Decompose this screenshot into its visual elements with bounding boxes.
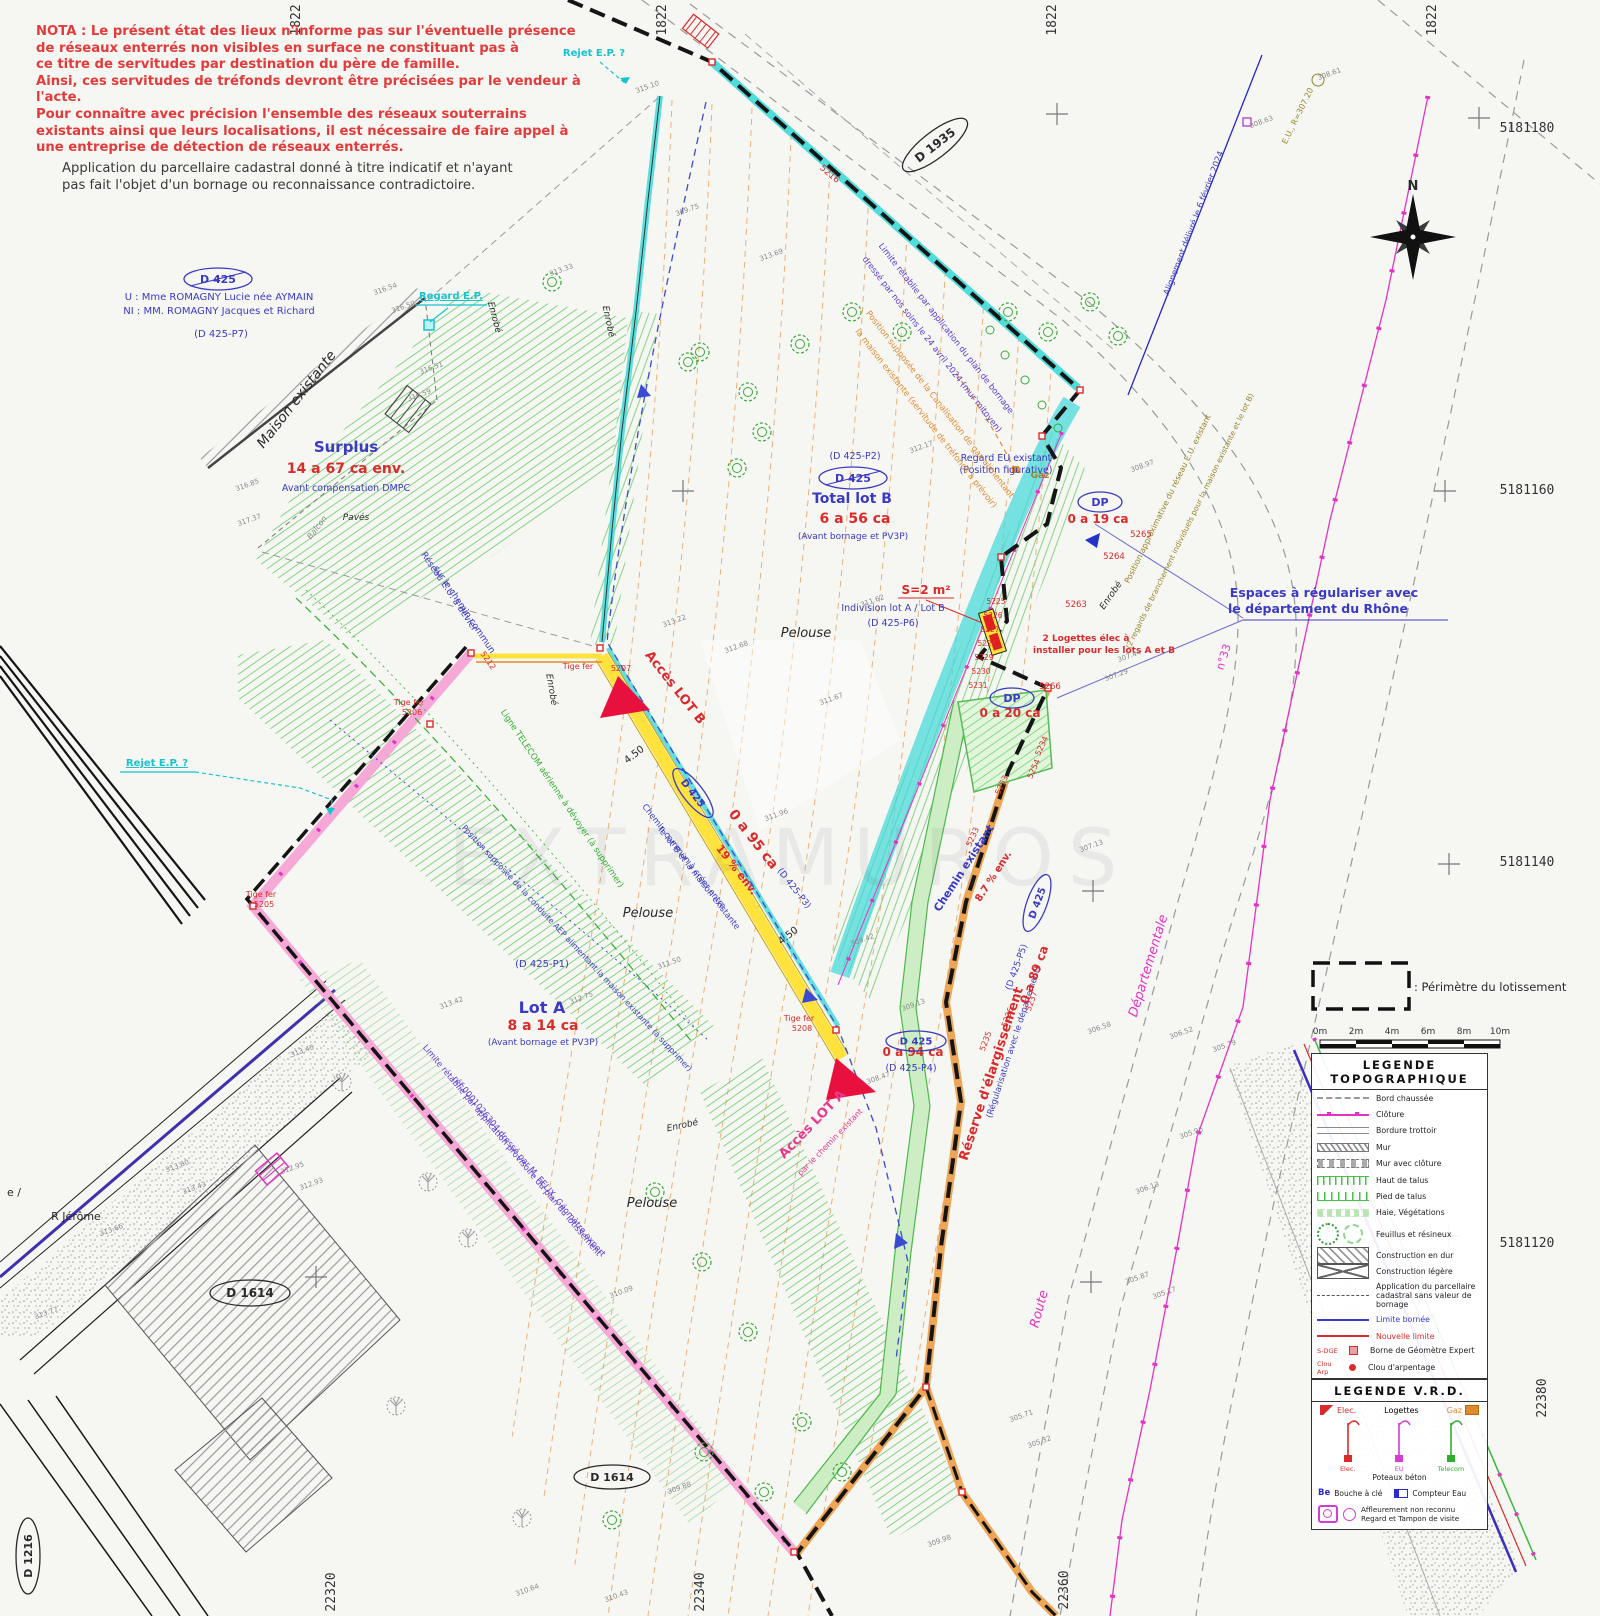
map-label-84: 5212: [479, 650, 498, 672]
svg-text:D 425: D 425: [200, 273, 236, 286]
pole-elec-icon: Elec.: [1335, 1415, 1361, 1473]
map-label-3: Maison existante: [254, 348, 340, 452]
elevation-label-25: 305.79: [1211, 1038, 1237, 1054]
construction-legere-symbol: [1317, 1266, 1369, 1278]
mur-symbol: [1317, 1141, 1369, 1153]
regard-sortie-symbol: [682, 14, 718, 48]
map-label-93: 5229: [974, 653, 993, 662]
nota-line: une entreprise de détection de réseaux e…: [36, 140, 596, 157]
construction-dur-symbol: [1317, 1250, 1369, 1262]
map-label-1: Regard E.P.: [419, 291, 483, 302]
elevation-label-26: 305.96: [1178, 1125, 1204, 1141]
scalebar-label: 8m: [1457, 1027, 1472, 1037]
compteur-eau-icon: [1394, 1489, 1408, 1498]
grid-x-label-top: 1822: [655, 4, 670, 35]
pole-telecom-icon: Telecom: [1438, 1415, 1465, 1473]
map-label-23: 2 Logettes élec à: [1043, 633, 1130, 644]
vrd-row-regard: Affleurement non reconnuRegard et Tampon…: [1312, 1501, 1487, 1529]
elevation-label-8: 316.85: [234, 477, 260, 493]
map-label-2: Rejet E.P. ?: [126, 758, 188, 769]
map-label-26: le département du Rhône: [1228, 601, 1408, 616]
elevation-label-0: 315.10: [634, 79, 660, 95]
elevation-label-3: 313.33: [548, 262, 574, 278]
scalebar-label: 4m: [1385, 1027, 1400, 1037]
map-label-27: Alignement délivré le 6 février 2024: [1161, 149, 1226, 296]
elevation-label-27: 305.87: [1124, 1270, 1150, 1286]
map-label-67: E.U., R=307.20: [1280, 86, 1315, 145]
legend-item-nouvelle: Nouvelle limite: [1312, 1328, 1487, 1344]
scalebar-label: 6m: [1421, 1027, 1436, 1037]
parcel-ellipse-0: D 425: [184, 268, 252, 290]
svg-text:D 425: D 425: [900, 1037, 933, 1048]
grid-y-label: 5181120: [1500, 1236, 1555, 1251]
elevation-label-43: 310.64: [514, 1582, 540, 1598]
cadastral-plan-page: EXTRAMUROS 51811805181160518114051811202…: [0, 0, 1600, 1616]
parcel-ellipse-9: D 1614: [574, 1465, 650, 1489]
grid-cross: [1046, 103, 1068, 125]
map-label-95: 5231: [968, 681, 987, 690]
bord-chaussee-symbol: [1317, 1092, 1369, 1104]
map-label-76: 5207: [611, 664, 631, 673]
grid-x-label: 22320: [324, 1572, 339, 1611]
legend-item-haut: Haut de talus: [1312, 1172, 1487, 1188]
map-label-11: (D 425-P7): [194, 329, 248, 340]
road-heavy-left: [0, 646, 205, 924]
nota-block: NOTA : Le présent état des lieux n'infor…: [36, 24, 596, 157]
elevation-label-1: 309.75: [674, 202, 700, 218]
haut-talus-symbol: [1317, 1174, 1369, 1186]
map-label-68: Gaz: [1031, 471, 1050, 481]
elevation-label-18: 308.61: [1316, 66, 1342, 82]
map-label-90: 5226: [983, 611, 1002, 620]
map-label-13: Total lot B: [812, 491, 892, 507]
map-label-54: Réserve d'élargissement: [957, 985, 1027, 1162]
scalebar-label: 0m: [1313, 1027, 1328, 1037]
legend-item-clou: Clou ArpClou d'arpentage: [1312, 1358, 1487, 1378]
map-label-24: installer pour les lots A et B: [1033, 646, 1175, 656]
nota-line: Ainsi, ces servitudes de tréfonds devron…: [36, 74, 596, 107]
elevation-label-23: 306.52: [1168, 1025, 1194, 1041]
elevation-label-35: 311.50: [656, 955, 682, 971]
map-label-8: Pavés: [343, 512, 370, 523]
map-label-94: 5230: [971, 667, 990, 676]
elevation-label-20: 307.29: [1103, 667, 1129, 683]
elevation-label-4: 316.54: [372, 281, 398, 297]
legend-item-dur: Construction en dur: [1312, 1247, 1487, 1263]
grid-y-label: 5181180: [1500, 121, 1555, 136]
grid-x-label-top: 1822: [1425, 4, 1440, 35]
map-label-45: Enrobé: [543, 673, 559, 707]
map-label-38: 4.50: [622, 744, 646, 766]
vrd-row-bouche: Be Bouche à clé Compteur Eau: [1312, 1485, 1487, 1501]
elevation-label-24: 306.13: [1134, 1180, 1160, 1196]
scale-bar: [1320, 1040, 1500, 1048]
grid-x-label-top: 1822: [1045, 4, 1060, 35]
legend-topo-title: LEGENDE TOPOGRAPHIQUE: [1312, 1054, 1487, 1090]
nouvelle-limite-symbol: [1317, 1330, 1369, 1342]
map-label-9: U : Mme ROMAGNY Lucie née AYMAIN: [125, 291, 314, 303]
map-label-87: 5263: [1065, 600, 1087, 610]
map-label-105: N: [1408, 179, 1419, 194]
map-label-51: (Avant bornage et PV3P): [488, 1038, 598, 1048]
map-label-29: dressé par nos soins le 24 avril 2024 (m…: [860, 254, 1004, 434]
map-label-10: NI : MM. ROMAGNY Jacques et Richard: [123, 306, 314, 317]
map-label-12: (D 425-P2): [829, 451, 880, 462]
map-label-79: Tige fer: [245, 890, 277, 899]
acces-lot-b-arrow: [600, 676, 650, 718]
legend-item-arbres: Feuillus et résineux: [1312, 1221, 1487, 1247]
scalebar-label: 2m: [1349, 1027, 1364, 1037]
map-label-89: 5225: [986, 597, 1005, 606]
poteaux-beton-caption: Poteaux béton: [1312, 1473, 1487, 1485]
map-label-92: 5228: [977, 639, 996, 648]
nota-line: Pour connaître avec précision l'ensemble…: [36, 107, 596, 124]
limite-bornee-symbol: [1317, 1314, 1369, 1326]
map-label-103: R Jérôme: [51, 1210, 101, 1223]
map-label-61: par le chemin existant: [796, 1107, 865, 1178]
map-label-75: Tige fer: [562, 662, 594, 671]
nota-line: de réseaux enterrés non visibles en surf…: [36, 41, 596, 58]
legend-item-pied: Pied de talus: [1312, 1188, 1487, 1204]
map-label-18: S=2 m²: [902, 583, 951, 597]
parcel-ellipse-1: D 425: [819, 467, 887, 489]
elevation-label-30: 308.47: [865, 1070, 891, 1086]
elevation-label-33: 313.42: [438, 995, 464, 1011]
feuillus-icon: [1317, 1223, 1369, 1245]
borne-icon: [1349, 1346, 1358, 1355]
map-label-59: (D 425-P4): [885, 1063, 936, 1074]
application-line: Application du parcellaire cadastral don…: [62, 160, 582, 177]
vrd-row-logettes: Elec. Logettes Gaz: [1312, 1402, 1487, 1415]
map-label-64: n°33: [1214, 642, 1234, 671]
map-label-104: e /: [7, 1186, 21, 1199]
svg-text:D 425: D 425: [835, 472, 871, 485]
elevation-label-38: 312.93: [298, 1176, 324, 1192]
map-label-91: 5227: [980, 625, 999, 634]
map-label-49: Lot A: [519, 998, 566, 1017]
map-label-19: Indivision lot A / Lot B: [841, 603, 944, 614]
legend-vrd-title: LEGENDE V.R.D.: [1312, 1380, 1487, 1402]
elevation-label-28: 305.17: [1151, 1285, 1177, 1301]
tampon-icon: [1343, 1508, 1356, 1521]
elec-flag-icon: [1320, 1405, 1334, 1415]
mur-cloture-symbol: [1317, 1158, 1369, 1170]
map-label-41: Pelouse: [623, 906, 673, 921]
elevation-label-47: 305.32: [1026, 1434, 1052, 1450]
legend-topographique: LEGENDE TOPOGRAPHIQUE Bord chaussée Clôt…: [1311, 1053, 1488, 1379]
elevation-label-46: 305.71: [1008, 1408, 1034, 1424]
grid-x-label: 22380: [1535, 1378, 1550, 1417]
map-label-62: Départementale: [1126, 913, 1171, 1019]
legend-item-parcellaire: Application du parcellaire cadastral san…: [1312, 1280, 1487, 1311]
nota-line: NOTA : Le présent état des lieux n'infor…: [36, 24, 596, 41]
elevation-label-44: 310.43: [603, 1588, 629, 1604]
legend-column: LEGENDE TOPOGRAPHIQUE Bord chaussée Clôt…: [1311, 1053, 1488, 1530]
parcellaire-symbol: [1317, 1290, 1369, 1302]
svg-text:D 1935: D 1935: [912, 125, 958, 165]
map-label-88: 5266: [1039, 682, 1061, 692]
map-label-30: Position supposée de la Canalisation de …: [863, 308, 1017, 501]
grid-x-label: 22360: [1057, 1570, 1072, 1609]
svg-text:DP: DP: [1003, 692, 1020, 705]
grid-y-label: 5181160: [1500, 483, 1555, 498]
elevation-label-10: 313.22: [661, 613, 687, 629]
scalebar-label: 10m: [1490, 1027, 1510, 1037]
legend-item-murcl: Mur avec clôture: [1312, 1156, 1487, 1172]
map-label-77: Tige fer: [393, 698, 425, 707]
map-label-50: 8 a 14 ca: [507, 1018, 578, 1034]
svg-text:D 1614: D 1614: [590, 1471, 634, 1484]
road-corner-d1216: [0, 1396, 208, 1616]
map-label-6: 14 a 67 ca env.: [287, 461, 405, 477]
map-label-42: Pelouse: [627, 1196, 677, 1211]
elevation-label-16: 308.97: [1129, 458, 1155, 474]
elevation-label-31: 310.09: [608, 1284, 634, 1300]
parcel-ellipse-7: D 1935: [895, 110, 974, 180]
svg-text:DP: DP: [1091, 496, 1108, 509]
haie-symbol: [1317, 1207, 1369, 1219]
legend-item-borne: S-DGEBorne de Géomètre Expert: [1312, 1344, 1487, 1357]
legend-item-bord: Bord chaussée: [1312, 1090, 1487, 1106]
elevation-label-22: 306.58: [1086, 1020, 1112, 1036]
map-label-63: Route: [1027, 1289, 1051, 1330]
map-label-20: (D 425-P6): [867, 618, 918, 629]
clou-icon: [1349, 1364, 1356, 1371]
map-label-14: 6 a 56 ca: [819, 511, 890, 527]
elevation-label-17: 308.63: [1248, 114, 1274, 130]
legend-item-legere: Construction légère: [1312, 1264, 1487, 1280]
grid-cross: [1438, 853, 1460, 875]
gaz-icon: [1465, 1405, 1479, 1415]
map-label-106: : Périmètre du lotissement: [1414, 980, 1567, 994]
building-d1614-annex: [175, 1398, 332, 1552]
legend-item-bornee: Limite bornée: [1312, 1312, 1487, 1328]
legend-vrd: LEGENDE V.R.D. Elec. Logettes Gaz Elec. …: [1311, 1379, 1488, 1530]
map-label-5: Surplus: [314, 438, 378, 456]
map-label-31: la maison existante (servitude de tréfon…: [853, 327, 1000, 511]
map-label-80: 5205: [254, 900, 274, 909]
grid-cross: [672, 480, 694, 502]
legend-item-cloture: Clôture: [1312, 1106, 1487, 1122]
map-label-85: 5265: [1130, 530, 1152, 540]
grid-cross: [1468, 107, 1490, 129]
elevation-label-13: 312.17: [908, 439, 934, 455]
map-label-46: Enrobé: [1097, 579, 1125, 612]
vrd-poles: Elec. EU Telecom: [1312, 1415, 1487, 1473]
application-line: pas fait l'objet d'un bornage ou reconna…: [62, 177, 582, 194]
map-label-86: 5264: [1103, 552, 1125, 562]
elevation-label-37: 312.95: [279, 1160, 305, 1176]
parcel-ellipse-10: D 1216: [16, 1518, 40, 1594]
parcel-ellipse-5: DP: [1078, 492, 1122, 512]
pole-eu-icon: EU: [1386, 1415, 1412, 1473]
svg-text:D 1216: D 1216: [22, 1534, 35, 1578]
nota-line: ce titre de servitudes par destination d…: [36, 57, 596, 74]
svg-text:D 1614: D 1614: [226, 1286, 274, 1300]
bordure-symbol: [1317, 1125, 1369, 1137]
pied-talus-symbol: [1317, 1190, 1369, 1202]
legend-item-mur: Mur: [1312, 1139, 1487, 1155]
map-label-81: Tige fer: [783, 1014, 815, 1023]
north-arrow-icon: [1370, 194, 1456, 280]
elevation-label-2: 313.69: [758, 247, 784, 263]
affleurement-icon: [1318, 1505, 1338, 1523]
cloture-symbol: [1317, 1109, 1369, 1121]
grid-cross: [1434, 480, 1456, 502]
map-label-40: Pelouse: [781, 626, 831, 641]
map-label-82: 5208: [792, 1024, 812, 1033]
grid-cross: [1080, 1271, 1102, 1293]
regard-ep-symbol: [424, 320, 434, 330]
map-label-21: 0 a 19 ca: [1068, 512, 1129, 526]
map-label-7: Avant compensation DMPC: [282, 483, 411, 494]
application-block: Application du parcellaire cadastral don…: [62, 160, 582, 194]
map-label-78: 5206: [402, 708, 422, 717]
legend-item-bordure: Bordure trottoir: [1312, 1123, 1487, 1139]
map-label-48: (D 425-P1): [515, 959, 569, 970]
grid-y-label: 5181140: [1500, 855, 1555, 870]
elevation-label-45: 309.98: [926, 1533, 952, 1549]
legend-item-haie: Haie, Végétations: [1312, 1205, 1487, 1221]
map-label-25: Espaces à régulariser avec: [1230, 585, 1418, 600]
nota-line: existants ainsi que leurs localisations,…: [36, 124, 596, 141]
map-label-70: sur le chemin commun: [431, 564, 497, 655]
grid-x-label: 22340: [693, 1572, 708, 1611]
map-label-15: (Avant bornage et PV3P): [798, 532, 908, 542]
elevation-label-9: 317.37: [236, 512, 262, 528]
